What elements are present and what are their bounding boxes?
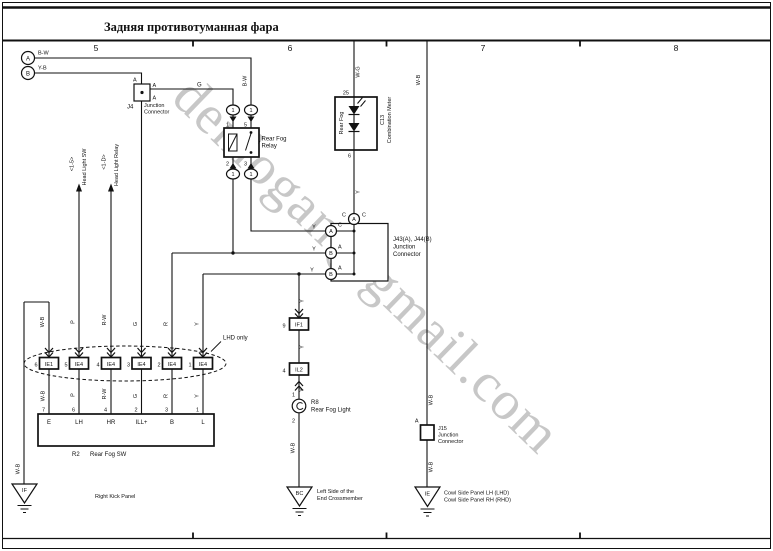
col4-wire-lower: G bbox=[133, 394, 139, 398]
j4-junction-connector: A A A J4 Junction Connector bbox=[127, 78, 170, 116]
ground-ie-code: IE bbox=[425, 492, 431, 498]
wire-label-right-low: W-B bbox=[429, 461, 435, 472]
combination-meter: W-G 25 Rear Fog C13 Combination Meter 6 … bbox=[335, 66, 393, 193]
bulb-pin-top: 1 bbox=[292, 393, 295, 399]
grid-number-7: 7 bbox=[481, 43, 486, 53]
relay-terminal-1b: 1 bbox=[249, 108, 252, 114]
fog-light-branch: Y 9 IF1 Y 4 IL2 Y 1 2 R8 Rear Fog Light … bbox=[282, 299, 363, 516]
j4-id: J4 bbox=[127, 105, 134, 111]
j15-box bbox=[421, 425, 435, 440]
wire-label-right-top: W-B bbox=[416, 74, 422, 85]
switch-name: Rear Fog SW bbox=[90, 452, 127, 458]
wire-label-right-mid: W-B bbox=[429, 394, 435, 405]
switch-pin-b: 3 bbox=[165, 408, 168, 414]
wire-label-g: G bbox=[197, 83, 202, 89]
ground-bc-name-line1: Left Side of the bbox=[317, 489, 354, 495]
col2-wire-lower: P bbox=[71, 393, 77, 397]
grid-number-6: 6 bbox=[288, 43, 293, 53]
switch-pin-l: 1 bbox=[196, 408, 199, 414]
relay-terminal-1d: 1 bbox=[249, 172, 252, 178]
ground-bc-name-line2: End Crossmember bbox=[317, 496, 363, 502]
ground-hatch-icon bbox=[421, 509, 435, 516]
switch-box bbox=[38, 414, 214, 446]
bulb-icon bbox=[292, 399, 306, 413]
j43-name-line2: Connector bbox=[393, 252, 421, 258]
bulb-id: R8 bbox=[311, 400, 319, 406]
j43-p3-conn: B bbox=[329, 272, 333, 278]
switch-terminal-lh: LH bbox=[75, 420, 83, 426]
wire-label-meter-out: Y bbox=[356, 190, 362, 194]
harness-conn-4: IE4 bbox=[137, 362, 145, 368]
relay-terminal-1a: 1 bbox=[231, 108, 234, 114]
j43-p2-pin: A bbox=[338, 245, 342, 251]
j43-p1-conn: A bbox=[329, 229, 333, 235]
harness-conn-6: IE4 bbox=[199, 362, 207, 368]
ground-ie-name-line2: Cowl Side Panel RH (RHD) bbox=[444, 498, 511, 504]
j43-box bbox=[331, 224, 388, 282]
bulb-pin-bottom: 2 bbox=[292, 419, 295, 425]
col3-ref-name: Head Light Relay bbox=[114, 144, 120, 186]
col6-wire-lower: Y bbox=[195, 394, 201, 398]
col6-wire-upper: Y bbox=[195, 322, 201, 326]
lhd-only-note: LHD only bbox=[223, 336, 248, 342]
relay-name-line2: Relay bbox=[262, 144, 277, 150]
wire-label-bus-mid: Y bbox=[312, 247, 316, 253]
col5-wire-lower: R bbox=[164, 394, 170, 398]
meter-pin-top: 25 bbox=[343, 91, 349, 97]
switch-pin-ill: 2 bbox=[134, 408, 137, 414]
j4-name-line2: Connector bbox=[144, 110, 170, 116]
wire-label-lamp-3: Y bbox=[300, 388, 306, 392]
il2-label: IL2 bbox=[295, 368, 303, 374]
wire-label-lamp-2: Y bbox=[300, 345, 306, 349]
harness-conn-2: IE4 bbox=[75, 362, 83, 368]
relay-box bbox=[224, 128, 259, 157]
switch-pin-hr: 4 bbox=[104, 408, 107, 414]
il2-pin: 4 bbox=[282, 369, 285, 375]
harness-conn-3: IE4 bbox=[107, 362, 115, 368]
harness-pin-5: 2 bbox=[157, 363, 160, 369]
wire-label-bus-top: Y bbox=[312, 225, 316, 231]
source-a-id: A bbox=[26, 56, 30, 62]
junction-dots bbox=[231, 251, 300, 275]
wiring-diagram-page: denlogan@gmail.com bbox=[0, 0, 773, 551]
switch-pin-e: 7 bbox=[42, 408, 45, 414]
j43-top-conn: A bbox=[352, 217, 356, 223]
column-wire-labels-lower: W-B P R-W G R Y bbox=[41, 388, 201, 402]
rear-fog-switch: 7 6 4 2 3 1 E LH HR ILL+ B L R2 Rear Fog… bbox=[38, 408, 214, 459]
j15-name-line1: Junction bbox=[438, 433, 459, 439]
switch-terminal-hr: HR bbox=[107, 420, 116, 426]
col3-wire-lower: R-W bbox=[102, 388, 108, 400]
j4-pin-bottom: A bbox=[153, 96, 157, 102]
harness-pin-3: 4 bbox=[96, 363, 99, 369]
wire-label-left-ground-1: W-B bbox=[40, 316, 46, 327]
ground-ie-name-line1: Cowl Side Panel LH (LHD) bbox=[444, 491, 509, 497]
headlight-references: <1-5> Head Light SW <1-D> Head Light Rel… bbox=[70, 144, 121, 192]
switch-terminal-ill: ILL+ bbox=[136, 420, 148, 426]
source-a-wire-label: B-W bbox=[38, 51, 50, 57]
relay-pin-3: 3 bbox=[244, 162, 247, 168]
j4-pin-right: A bbox=[153, 83, 157, 89]
ground-if-name: Right Kick Panel bbox=[95, 494, 135, 500]
wire-label-bw-drop: B-W bbox=[243, 75, 249, 87]
harness-pin-4: 3 bbox=[127, 363, 130, 369]
col2-ref-code: <1-5> bbox=[70, 157, 76, 171]
col3-ref-code: <1-D> bbox=[102, 154, 108, 169]
j15-id: J15 bbox=[438, 426, 447, 432]
wire-label-meter-feed: W-G bbox=[356, 66, 362, 77]
harness-pin-1: 6 bbox=[34, 363, 37, 369]
harness-conn-1: IE1 bbox=[45, 362, 53, 368]
wire-label-bus-bottom: Y bbox=[310, 268, 314, 274]
wire-label-lamp-ground: W-B bbox=[291, 442, 297, 453]
j43-name-line1: Junction bbox=[393, 245, 415, 251]
if1-label: IF1 bbox=[295, 323, 303, 329]
meter-pin-bottom: 6 bbox=[348, 154, 351, 160]
relay-name-line1: Rear Fog bbox=[262, 137, 287, 143]
j43-name: J43(A), J44(B) bbox=[393, 237, 432, 243]
ground-if-code: IF bbox=[22, 488, 28, 494]
col5-wire-upper: R bbox=[164, 322, 170, 326]
source-b-id: B bbox=[26, 71, 30, 77]
bulb-name: Rear Fog Light bbox=[311, 408, 351, 414]
j43-p3-pin: A bbox=[338, 266, 342, 272]
j4-pin-top: A bbox=[133, 78, 137, 84]
j43-p1-pin: C bbox=[338, 223, 342, 229]
harness-pin-6: 1 bbox=[188, 363, 191, 369]
grid-number-5: 5 bbox=[94, 43, 99, 53]
col3-wire-upper: R-W bbox=[102, 314, 108, 326]
ground-bc-code: BC bbox=[296, 491, 304, 497]
ground-hatch-icon bbox=[18, 506, 32, 513]
col1-wire-lower: W-B bbox=[41, 390, 47, 401]
harness-conn-5: IE4 bbox=[168, 362, 176, 368]
meter-name: Combination Meter bbox=[387, 97, 393, 144]
j15-pin: A bbox=[415, 419, 419, 425]
meter-code: C13 bbox=[380, 115, 386, 125]
j43-top-pin-left: C bbox=[342, 213, 346, 219]
j15-name-line2: Connector bbox=[438, 439, 464, 445]
relay-pin-2: 2 bbox=[226, 162, 229, 168]
relay-terminal-1c: 1 bbox=[231, 172, 234, 178]
if1-pin: 9 bbox=[282, 324, 285, 330]
grid-number-8: 8 bbox=[674, 43, 679, 53]
source-b-wire-label: Y-B bbox=[38, 66, 47, 72]
wire-label-lamp-1: Y bbox=[300, 299, 306, 303]
harness-connector-row: LHD only IE1 IE4 IE4 IE4 IE4 IE4 6 5 4 3… bbox=[24, 336, 248, 382]
wire-label-left-ground-2: W-B bbox=[16, 463, 22, 474]
wiring-diagram-canvas: denlogan@gmail.com bbox=[0, 0, 773, 551]
switch-terminal-e: E bbox=[47, 420, 51, 426]
j4-name-line1: Junction bbox=[144, 103, 165, 109]
column-wire-labels-upper: P R-W G R Y bbox=[71, 314, 201, 326]
bottom-rule-ticks bbox=[193, 533, 580, 539]
j43-p2-conn: B bbox=[329, 251, 333, 257]
switch-id: R2 bbox=[72, 452, 80, 458]
switch-pin-lh: 6 bbox=[72, 408, 75, 414]
j43-top-pin-right: C bbox=[362, 213, 366, 219]
meter-indicator-label: Rear Fog bbox=[339, 112, 345, 135]
ground-hatch-icon bbox=[293, 509, 307, 516]
page-title: Задняя противотуманная фара bbox=[104, 20, 279, 34]
col2-wire-upper: P bbox=[71, 320, 77, 324]
col4-wire-upper: G bbox=[133, 322, 139, 326]
switch-terminal-b: B bbox=[170, 420, 174, 426]
col2-ref-name: Head Light SW bbox=[82, 148, 88, 186]
harness-pin-2: 5 bbox=[64, 363, 67, 369]
